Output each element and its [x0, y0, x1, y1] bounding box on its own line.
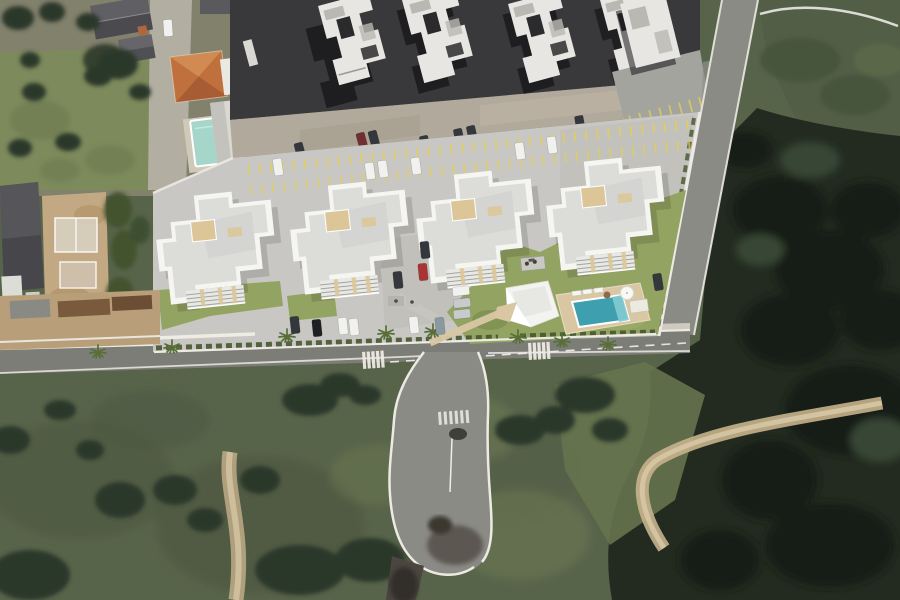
car	[418, 263, 429, 281]
car	[453, 298, 471, 309]
car	[514, 142, 525, 160]
utility-kiosk	[629, 299, 648, 313]
car	[393, 271, 404, 289]
table	[604, 292, 611, 299]
car	[349, 318, 360, 336]
car	[409, 316, 420, 334]
house-roof-orange	[170, 51, 227, 103]
car	[364, 162, 375, 180]
compound-bottom-left	[0, 290, 160, 350]
house-roof-gray-3	[200, 0, 230, 14]
existing-neighborhood-left	[0, 0, 246, 196]
car	[338, 317, 349, 335]
cul-de-sac-loop	[386, 352, 492, 600]
car	[312, 319, 323, 337]
car	[420, 241, 431, 259]
car	[163, 19, 173, 37]
site-plan-canvas	[0, 0, 900, 600]
car	[290, 316, 301, 334]
pergola	[520, 256, 545, 271]
car	[546, 136, 557, 154]
car	[377, 160, 388, 178]
vehicle-in-loop	[449, 428, 467, 440]
car	[452, 286, 470, 297]
aerial-site-plan-view	[0, 0, 900, 600]
car	[272, 158, 283, 176]
car	[410, 157, 421, 175]
car	[435, 317, 446, 335]
car	[453, 309, 471, 320]
shed-orange	[137, 25, 147, 35]
